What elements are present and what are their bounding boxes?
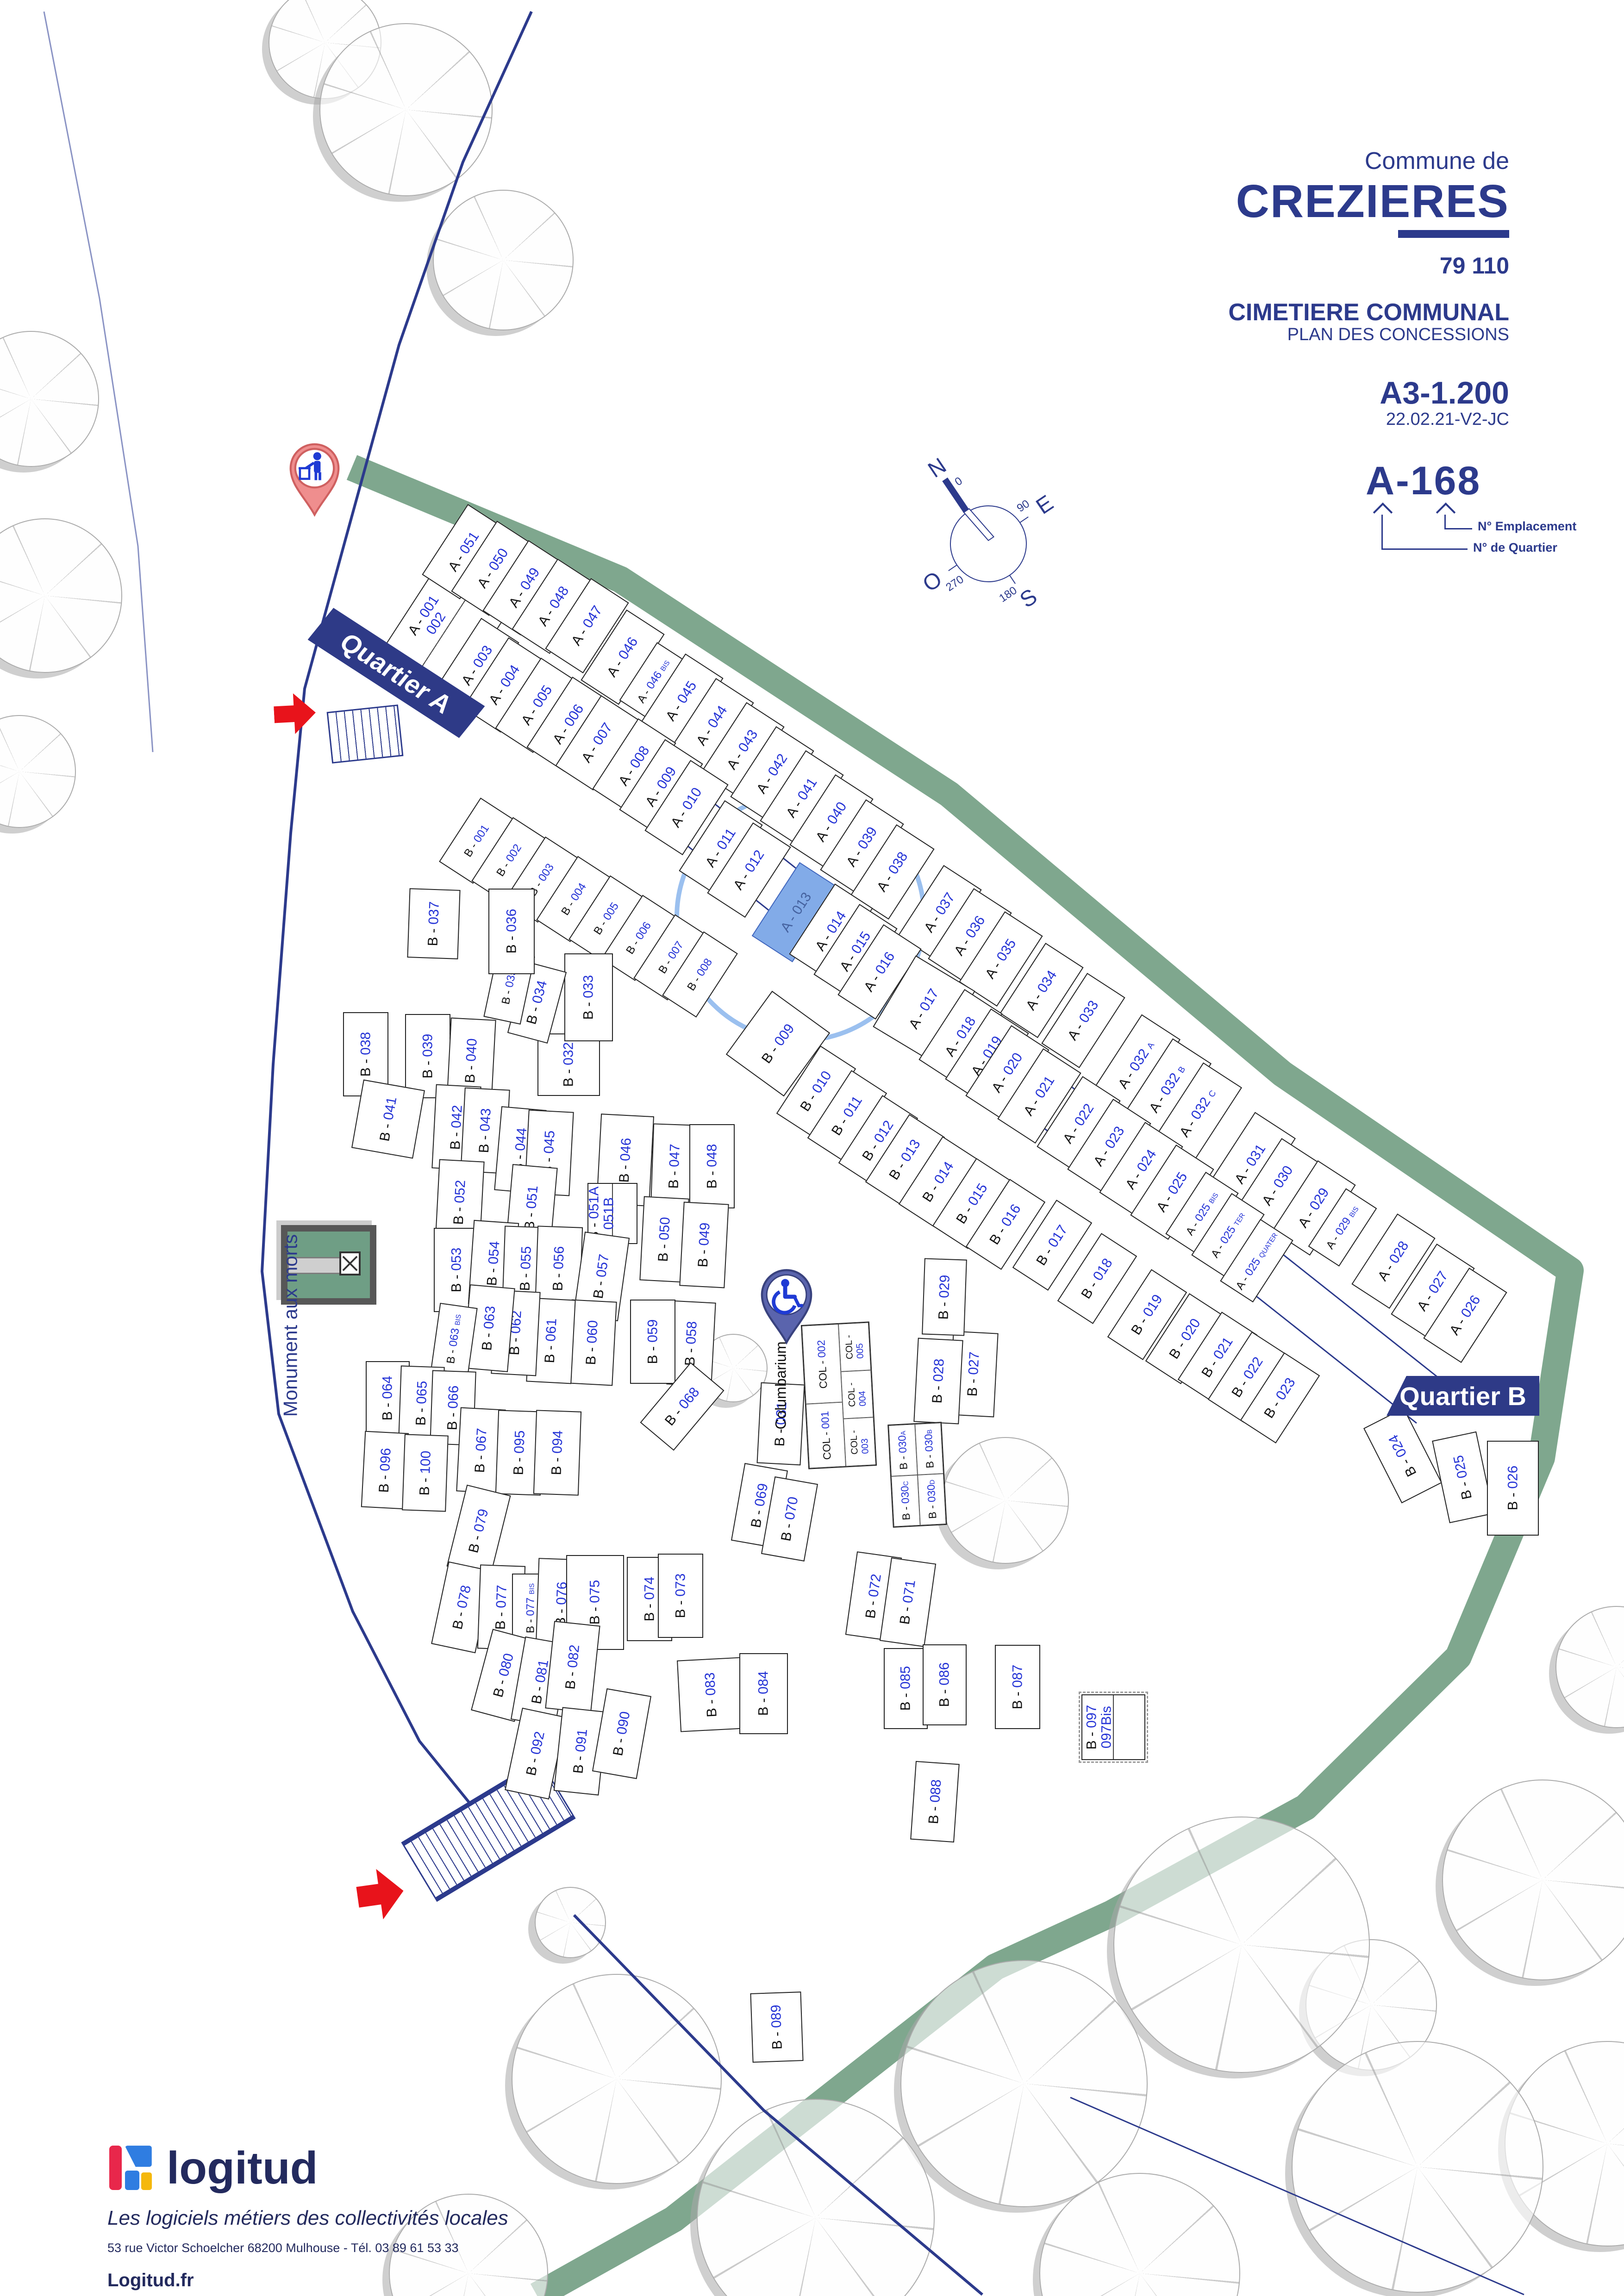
plot-label: B - 056	[551, 1246, 567, 1291]
plot-label: B - 032	[561, 1042, 576, 1087]
plot-label: B - 043	[477, 1108, 494, 1153]
plot-label: B - 073	[673, 1574, 688, 1618]
plot-label: B - 040	[463, 1038, 480, 1083]
legend-quartier: N° de Quartier	[1473, 541, 1557, 555]
plot-label: A - 021	[1021, 1074, 1057, 1119]
plot-B-100[interactable]: B - 100	[402, 1434, 449, 1512]
plot-label: B - 094	[550, 1430, 566, 1475]
plot-label: B - 087	[1010, 1665, 1025, 1710]
plot-label: B - 092	[524, 1730, 548, 1777]
plot-label: B - 058	[683, 1321, 700, 1366]
plot-B-086[interactable]: B - 086	[923, 1644, 967, 1725]
plot-label: B - 070	[778, 1496, 800, 1543]
plot-label: A - 033	[1065, 998, 1101, 1043]
plot-label: A - 047	[569, 604, 605, 648]
plot-label: B - 057	[591, 1253, 612, 1300]
plot-B-049[interactable]: B - 049	[679, 1202, 729, 1288]
plan-version: 22.02.21-V2-JC	[1204, 410, 1509, 429]
plot-B-029[interactable]: B - 029	[922, 1258, 967, 1336]
plot-B-036[interactable]: B - 036	[488, 889, 535, 974]
footer-address: 53 rue Victor Schoelcher 68200 Mulhouse …	[107, 2241, 459, 2255]
plot-label: B - 036	[504, 909, 519, 954]
plot-B-026[interactable]: B - 026	[1487, 1441, 1539, 1536]
plot-label: B - 025	[1451, 1454, 1475, 1500]
plot-B-041[interactable]: B - 041	[351, 1079, 425, 1158]
plot-label: A - 028	[1375, 1239, 1412, 1284]
plot-label: B - 097097Bis	[1085, 1705, 1114, 1750]
plot-B-089[interactable]: B - 089	[750, 1991, 803, 2063]
plot-label: B - 072	[863, 1573, 884, 1619]
plot-B-048[interactable]: B - 048	[689, 1124, 735, 1208]
plot-B-030C[interactable]: B - 030C	[891, 1475, 920, 1526]
plot-label: B - 077 BIS	[525, 1583, 536, 1633]
legend-emplacement: N° Emplacement	[1478, 519, 1576, 534]
plot-B-083[interactable]: B - 083	[677, 1657, 745, 1732]
plot-label: B - 080	[491, 1652, 516, 1699]
plot-B-028[interactable]: B - 028	[913, 1338, 963, 1425]
columbarium-label: Columbarium	[773, 1341, 790, 1429]
plot-label: B - 054	[485, 1241, 502, 1287]
footer-tagline: Les logiciels métiers des collectivités …	[107, 2207, 508, 2230]
plot-label: B - 019	[1129, 1292, 1165, 1337]
plot-label: B - 064	[380, 1376, 395, 1421]
waste-bin-pin[interactable]	[288, 442, 341, 518]
plot-label: B - 075	[587, 1580, 602, 1625]
plot-label: B - 026	[1505, 1466, 1520, 1511]
plot-B-030A[interactable]: B - 030A	[888, 1424, 917, 1476]
plot-label: B - 055	[518, 1246, 534, 1291]
plot-label: A - 034	[1024, 968, 1060, 1013]
svg-text:0: 0	[953, 474, 965, 488]
plot-label: B - 083	[703, 1672, 720, 1717]
plot-label: B - 006	[624, 920, 653, 956]
plot-label: B - 005	[592, 900, 621, 937]
plot-label: B - 004	[559, 881, 588, 917]
plot-label: B - 089	[769, 2004, 785, 2050]
plot-B-088[interactable]: B - 088	[910, 1761, 960, 1842]
plot-label: B - 088	[926, 1779, 943, 1825]
plot-label: B - 060	[584, 1320, 601, 1365]
plot-label: B - 033	[581, 975, 596, 1020]
plot-label: B - 066	[445, 1385, 461, 1431]
plot-label: A - 016	[862, 950, 898, 995]
plot-COL-003[interactable]: COL -003	[843, 1417, 876, 1466]
plot-label: B - 061	[543, 1318, 560, 1363]
banner-quartier-b: Quartier B	[1387, 1376, 1539, 1416]
plot-label: B - 095	[512, 1430, 528, 1475]
plot-label: B - 096	[376, 1447, 394, 1493]
plot-label: B - 053	[449, 1248, 464, 1293]
monument-flag-icon	[339, 1251, 361, 1276]
svg-text:90: 90	[1015, 498, 1032, 515]
plot-B-073[interactable]: B - 073	[658, 1554, 703, 1638]
plot-B-082[interactable]: B - 082	[545, 1621, 600, 1713]
plot-label: B - 023	[1262, 1375, 1298, 1420]
cemetery-plan-page: Monument aux morts	[0, 0, 1624, 2296]
plot-label: B - 024	[1386, 1432, 1419, 1479]
plot-label: B - 090	[611, 1711, 633, 1757]
plot-label: B - 059	[645, 1319, 660, 1364]
plot-label: B - 029	[937, 1274, 953, 1319]
plot-label: B - 002	[494, 842, 524, 878]
plot-B-030B[interactable]: B - 030B	[914, 1423, 943, 1475]
format-scale: A3-1.200	[1204, 375, 1509, 411]
plot-label: B - 082	[563, 1644, 582, 1690]
plot-B-097[interactable]: B - 097097Bis	[1081, 1694, 1145, 1760]
plot-B-059[interactable]: B - 059	[630, 1300, 675, 1384]
plot-label: B - 027	[965, 1351, 982, 1397]
plot-label: B - 063 BIS	[445, 1313, 463, 1364]
plot-label: B - 091	[571, 1728, 590, 1774]
plot-label: A - 012	[731, 848, 767, 893]
plot-label: B - 017	[1034, 1222, 1070, 1268]
svg-text:270: 270	[943, 573, 966, 594]
plot-COL-001[interactable]: COL - 001	[806, 1402, 846, 1468]
legend-code: A-168	[1366, 458, 1481, 504]
plot-label: B - 048	[705, 1144, 719, 1189]
postal-code: 79 110	[1204, 252, 1509, 279]
compass-rose: N 0 E 90 S 180 O 270	[914, 447, 1062, 632]
compass-s: S	[1016, 584, 1042, 613]
plot-B-096[interactable]: B - 096	[361, 1431, 409, 1509]
plan-subtitle: PLAN DES CONCESSIONS	[1204, 325, 1509, 345]
commune-name: CREZIERES	[1204, 175, 1509, 228]
plot-B-084[interactable]: B - 084	[739, 1653, 788, 1734]
plan-title: CIMETIERE COMMUNAL	[1204, 299, 1509, 326]
plot-label: B - 047	[667, 1144, 683, 1189]
plot-B-037[interactable]: B - 037	[407, 888, 460, 959]
brand-name: logitud	[167, 2142, 318, 2194]
plot-label: B - 049	[696, 1222, 713, 1268]
plot-label: B - 052	[451, 1180, 468, 1225]
plot-label: B - 084	[756, 1671, 771, 1716]
plot-label: B - 100	[417, 1450, 433, 1495]
plot-label: B - 039	[420, 1034, 435, 1079]
plot-label: B - 086	[937, 1662, 952, 1707]
svg-text:180: 180	[997, 584, 1019, 605]
plot-label: B - 018	[1079, 1256, 1115, 1301]
plot-label: B - 051	[522, 1185, 541, 1231]
plot-label: B - 016	[987, 1201, 1024, 1247]
plot-label: B - 038	[358, 1032, 373, 1077]
header-rule	[1398, 230, 1509, 238]
footer-site[interactable]: Logitud.fr	[107, 2270, 194, 2291]
plot-label: A - 007	[579, 721, 615, 765]
plot-label: B - 046	[617, 1137, 634, 1182]
plot-label: B - 001	[462, 822, 491, 859]
plot-label: B - 068	[662, 1385, 702, 1428]
plot-B-033[interactable]: B - 033	[564, 953, 613, 1041]
plot-label: A - 017	[906, 986, 942, 1032]
plot-label: B - 085	[898, 1666, 913, 1711]
plot-B-030-block[interactable]: B - 030AB - 030BB - 030CB - 030D	[887, 1422, 947, 1528]
accessible-pin[interactable]	[759, 1268, 814, 1346]
plot-label: B - 077	[493, 1585, 510, 1630]
plot-label: B - 063	[480, 1305, 498, 1351]
monument-label: Monument aux morts	[279, 1234, 301, 1417]
plot-label: B - 009	[759, 1021, 797, 1066]
plot-label: A - 010	[668, 785, 705, 830]
plot-label: A - 035	[983, 937, 1019, 982]
compass-e: E	[1032, 491, 1058, 519]
plot-label: A - 032 C	[1177, 1086, 1219, 1139]
plot-label: B - 074	[642, 1577, 657, 1622]
stairs-north-entrance	[327, 704, 404, 764]
logitud-logo	[106, 2144, 155, 2192]
plot-label: A - 026	[1447, 1293, 1483, 1338]
plot-label: A - 038	[874, 850, 911, 895]
plot-label: B - 028	[930, 1358, 947, 1404]
plot-label: B - 008	[685, 956, 714, 993]
commune-line: Commune de	[1204, 147, 1509, 175]
plot-COL-004[interactable]: COL -004	[841, 1370, 873, 1419]
plot-label: B - 050	[656, 1217, 673, 1262]
plot-label: A - 046	[605, 635, 641, 680]
plot-B-030D[interactable]: B - 030D	[917, 1473, 946, 1525]
plot-label: B - 041	[377, 1096, 399, 1143]
plot-B-087[interactable]: B - 087	[995, 1645, 1040, 1729]
plot-label: B - 037	[426, 901, 442, 946]
compass-o: O	[918, 567, 947, 597]
plot-label: B - 079	[466, 1507, 491, 1554]
plot-B-094[interactable]: B - 094	[533, 1410, 581, 1495]
plot-label: B - 071	[898, 1579, 918, 1625]
plot-B-085[interactable]: B - 085	[884, 1648, 928, 1729]
plot-COL-005[interactable]: COL -005	[838, 1322, 871, 1371]
plot-label: B - 065	[413, 1381, 430, 1426]
plot-label: B - 078	[450, 1584, 474, 1630]
plot-label: B - 067	[473, 1428, 490, 1473]
